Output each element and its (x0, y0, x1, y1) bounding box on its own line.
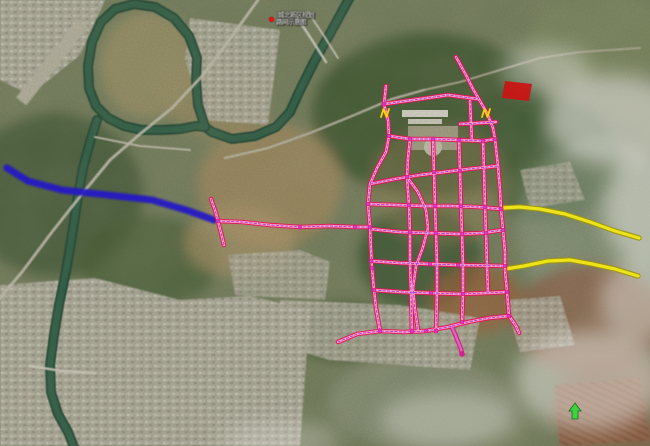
road-node-8[interactable] (481, 139, 484, 142)
road-node-15[interactable] (433, 204, 436, 207)
road-node-22[interactable] (484, 231, 487, 234)
road-node-29[interactable] (429, 291, 432, 294)
road-node-2[interactable] (368, 225, 371, 228)
road-node-9[interactable] (493, 137, 496, 140)
map-canvas[interactable]: 城北新区规划 路网示意图 (0, 0, 650, 446)
road-node-34[interactable] (460, 320, 463, 323)
road-node-39[interactable] (353, 225, 356, 228)
road-node-4[interactable] (378, 329, 381, 332)
road-node-28[interactable] (372, 288, 375, 291)
road-node-20[interactable] (434, 231, 437, 234)
road-node-33[interactable] (434, 329, 437, 332)
road-node-13[interactable] (366, 202, 369, 205)
placemark-dot-icon (269, 17, 274, 22)
road-node-5[interactable] (408, 137, 411, 140)
road-node-19[interactable] (408, 230, 411, 233)
road-node-10[interactable] (405, 175, 408, 178)
road-node-17[interactable] (483, 205, 486, 208)
road-node-7[interactable] (457, 138, 460, 141)
road-node-38[interactable] (298, 225, 301, 228)
road-node-23[interactable] (501, 228, 504, 231)
red-area-marker[interactable] (502, 81, 532, 101)
road-node-27[interactable] (503, 264, 506, 267)
satellite-map (0, 0, 650, 446)
road-node-21[interactable] (460, 232, 463, 235)
road-node-6[interactable] (431, 137, 434, 140)
road-node-26[interactable] (456, 263, 459, 266)
road-node-18[interactable] (499, 207, 502, 210)
place-label-line2: 路网示意图 (276, 19, 306, 26)
road-node-37[interactable] (216, 219, 219, 222)
road-node-36[interactable] (507, 314, 510, 317)
road-node-11[interactable] (432, 170, 435, 173)
road-node-35[interactable] (424, 329, 427, 332)
road-node-0[interactable] (382, 102, 385, 105)
south-spur-end[interactable] (460, 352, 465, 357)
road-node-32[interactable] (410, 329, 413, 332)
road-node-31[interactable] (505, 290, 508, 293)
road-node-14[interactable] (407, 203, 410, 206)
road-node-24[interactable] (369, 259, 372, 262)
road-node-3[interactable] (370, 266, 373, 269)
road-node-12[interactable] (458, 169, 461, 172)
road-node-1[interactable] (387, 134, 390, 137)
road-node-25[interactable] (428, 262, 431, 265)
road-node-16[interactable] (459, 204, 462, 207)
road-node-30[interactable] (461, 292, 464, 295)
